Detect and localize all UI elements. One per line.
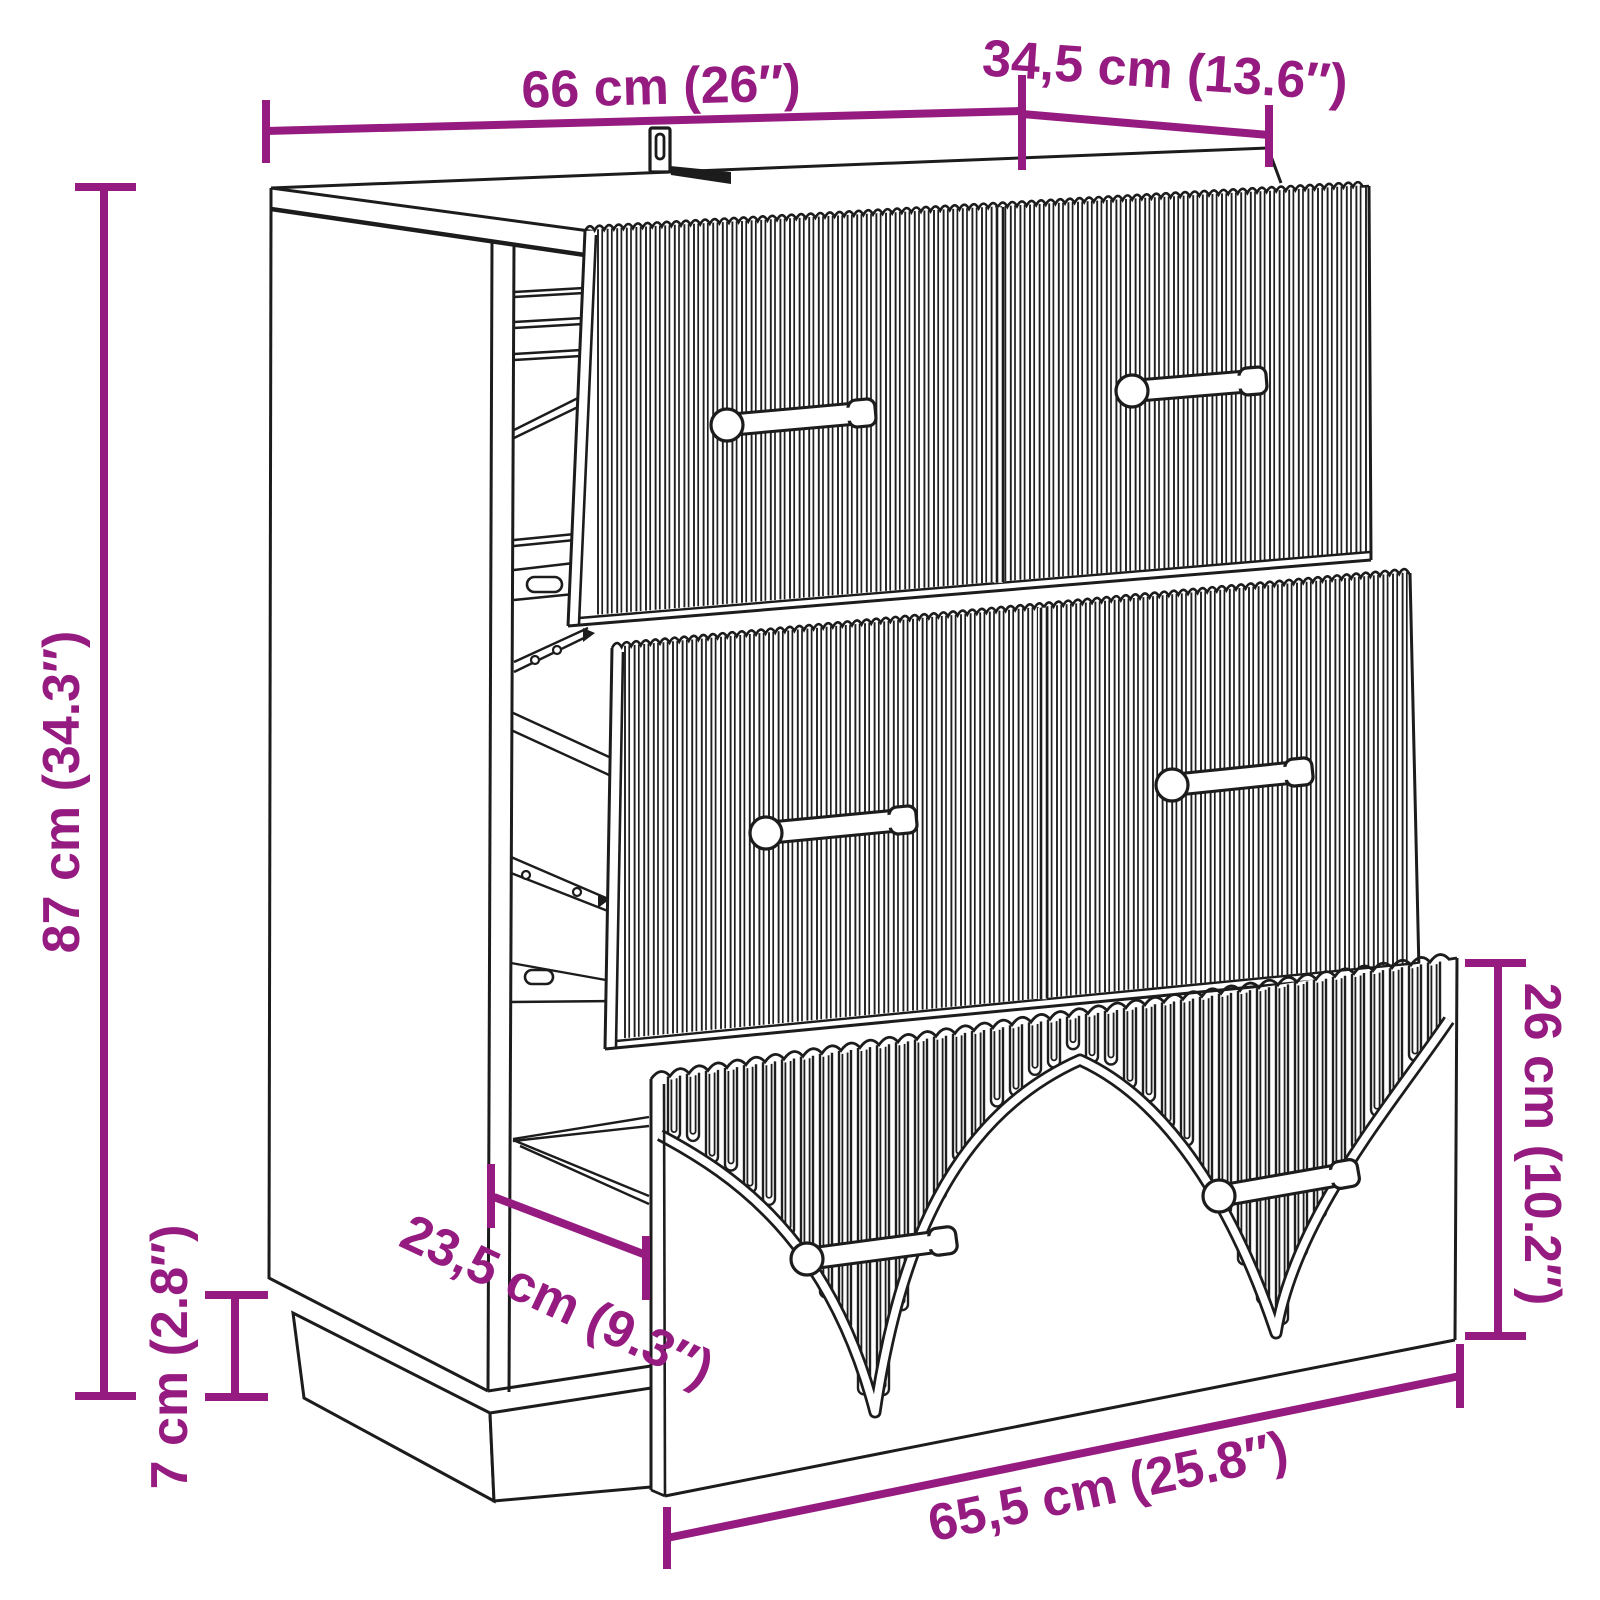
svg-text:26 cm (10.2″): 26 cm (10.2″)	[1513, 983, 1571, 1306]
svg-text:87 cm (34.3″): 87 cm (34.3″)	[33, 631, 91, 954]
svg-text:66 cm (26″): 66 cm (26″)	[521, 54, 802, 119]
svg-text:7 cm (2.8″): 7 cm (2.8″)	[141, 1225, 199, 1490]
